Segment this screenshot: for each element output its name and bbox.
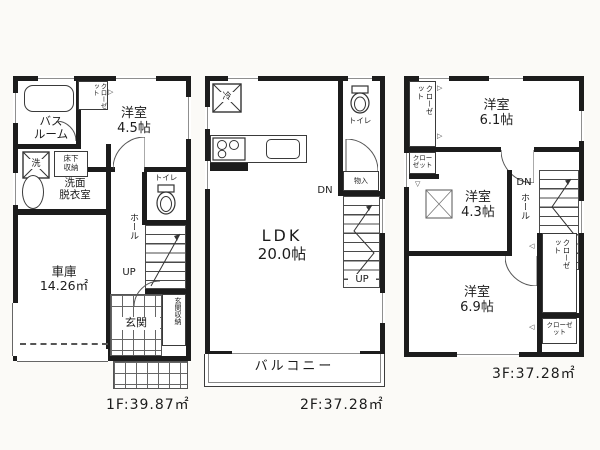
- window: [457, 352, 519, 357]
- room-name: 洗面: [65, 177, 86, 189]
- toilet-label: トイレ: [340, 117, 380, 126]
- room-name: 洋室: [464, 285, 490, 300]
- door-arc-icon: [344, 139, 378, 171]
- room-size: 20.0帖: [258, 245, 306, 263]
- closet-small-label: クローゼット: [544, 322, 575, 337]
- room-name: 洋室: [465, 190, 491, 205]
- door-swing-icon: ▷: [437, 85, 442, 92]
- wall: [106, 144, 111, 214]
- door-swing-icon: ▽: [415, 181, 420, 188]
- stairs-up-label: UP: [116, 267, 142, 279]
- western-room-4-3-label: 洋室 4.3帖: [439, 191, 517, 221]
- stairs-down-label: DN: [511, 177, 537, 189]
- door-swing-icon: ◁: [529, 324, 534, 331]
- wall: [144, 167, 186, 172]
- door-swing-icon: ▷: [108, 89, 113, 96]
- underfloor-storage-label: 床下 収納: [55, 155, 87, 172]
- door-swing-icon: ◁: [529, 243, 534, 250]
- sink-icon: [22, 175, 44, 209]
- western-room-6-1-label: 洋室 6.1帖: [439, 99, 554, 129]
- wall: [436, 147, 501, 152]
- floor-3-area-label: 3F:37.28㎡: [492, 363, 576, 383]
- entrance-storage-label: 玄関収納: [166, 297, 182, 345]
- storage-name: 収納: [64, 163, 79, 172]
- toilet-icon: [347, 85, 373, 115]
- entrance-label: 玄関: [112, 317, 160, 330]
- hall-label: ホール: [124, 213, 138, 261]
- western-room-6-9-label: 洋室 6.9帖: [429, 286, 525, 316]
- washer-label: 洗: [26, 159, 46, 169]
- wall: [18, 209, 111, 215]
- western-room-4-5-label: 洋室 4.5帖: [84, 107, 184, 137]
- toilet-icon: [153, 184, 179, 216]
- balcony-rail-line: [208, 354, 381, 383]
- door-arc-icon: [113, 137, 145, 169]
- window: [186, 97, 191, 139]
- stairs-down-label: DN: [312, 185, 338, 197]
- stairs-up-label: UP: [348, 274, 376, 286]
- floor-1-plan: バス ルーム クローゼット ▷ 洋室 4.5帖 洗 床下 収納 洗面 脱衣室 ト: [13, 76, 191, 361]
- wall: [18, 144, 80, 149]
- wall: [409, 251, 512, 256]
- room-size: 4.3帖: [461, 205, 495, 220]
- storage-label: 物入: [344, 177, 378, 185]
- room-name: 脱衣室: [59, 189, 91, 201]
- closet-small-label: クローゼット: [410, 155, 435, 170]
- toilet-label: トイレ: [146, 174, 186, 183]
- closet-label: クローゼット: [82, 83, 106, 109]
- room-name: 洋室: [483, 98, 509, 113]
- stairs: [145, 225, 186, 289]
- ldk-label: LDK 20.0帖: [232, 227, 332, 264]
- closet-label: クローゼット: [412, 85, 434, 115]
- window: [205, 107, 210, 129]
- garage-door-dashed-line: [20, 343, 108, 345]
- bathtub-icon: [24, 85, 74, 112]
- room-name: 車庫: [51, 264, 76, 279]
- window: [489, 76, 523, 81]
- room-size: 4.5帖: [117, 121, 151, 136]
- floor-1-area-label: 1F:39.87㎡: [106, 394, 190, 414]
- wall: [338, 81, 343, 139]
- floor-3-plan: クローゼット ▷ ▷ クローゼット ▽ 洋室 6.1帖 洋室 4.3帖 DN ホ…: [404, 76, 584, 357]
- door-arc-icon: [54, 121, 76, 143]
- door-arc-icon: [505, 256, 537, 286]
- room-size: 6.1帖: [480, 113, 514, 128]
- closet-label: クローゼット: [549, 239, 571, 269]
- kitchen-sink: [266, 139, 300, 159]
- wall: [409, 174, 439, 179]
- stove-icon: [212, 137, 246, 161]
- window: [38, 76, 74, 81]
- floor-2-plan: 冷 トイレ 物入 DN UP LDK 20.0帖: [205, 76, 385, 356]
- window: [13, 93, 18, 123]
- room-name: LDK: [262, 226, 303, 245]
- door-swing-icon: ▷: [437, 133, 442, 140]
- garage-front-opening: [17, 349, 108, 362]
- window: [348, 76, 372, 81]
- garage-label: 車庫 14.26㎡: [26, 265, 102, 294]
- window: [116, 76, 156, 81]
- refrigerator-label: 冷: [220, 92, 234, 102]
- window: [579, 111, 584, 141]
- hall-label: ホール: [515, 193, 529, 243]
- room-size: 14.26㎡: [40, 278, 88, 293]
- window: [13, 173, 18, 205]
- floor-2-area-label: 2F:37.28㎡: [300, 394, 384, 414]
- room-size: 6.9帖: [460, 300, 494, 315]
- wall: [534, 147, 579, 152]
- window: [380, 293, 385, 323]
- washroom-label: 洗面 脱衣室: [44, 177, 106, 201]
- wall: [210, 163, 248, 171]
- door-arc-icon: [134, 281, 160, 307]
- room-name: 洋室: [121, 106, 147, 121]
- balcony: バルコニー: [204, 354, 385, 387]
- approach-tiled-floor: [113, 361, 188, 389]
- window: [228, 76, 258, 81]
